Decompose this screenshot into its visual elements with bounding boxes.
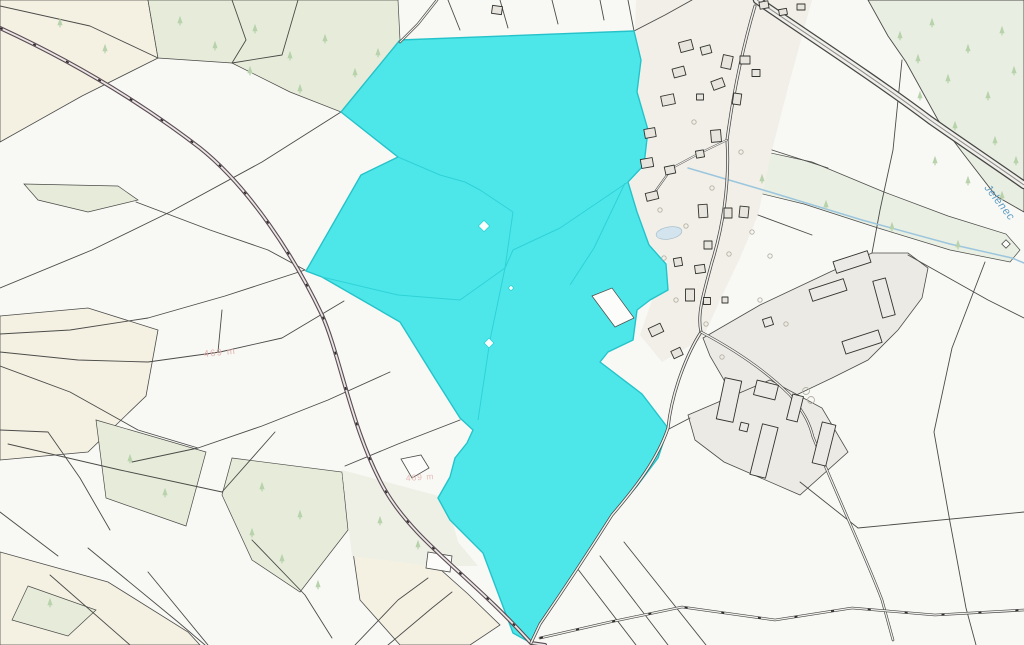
elevation-label: 469 m: [405, 471, 434, 483]
map-canvas[interactable]: Jelenec 469 m 469 m: [0, 0, 1024, 645]
cadastral-map: Jelenec 469 m 469 m: [0, 0, 1024, 645]
